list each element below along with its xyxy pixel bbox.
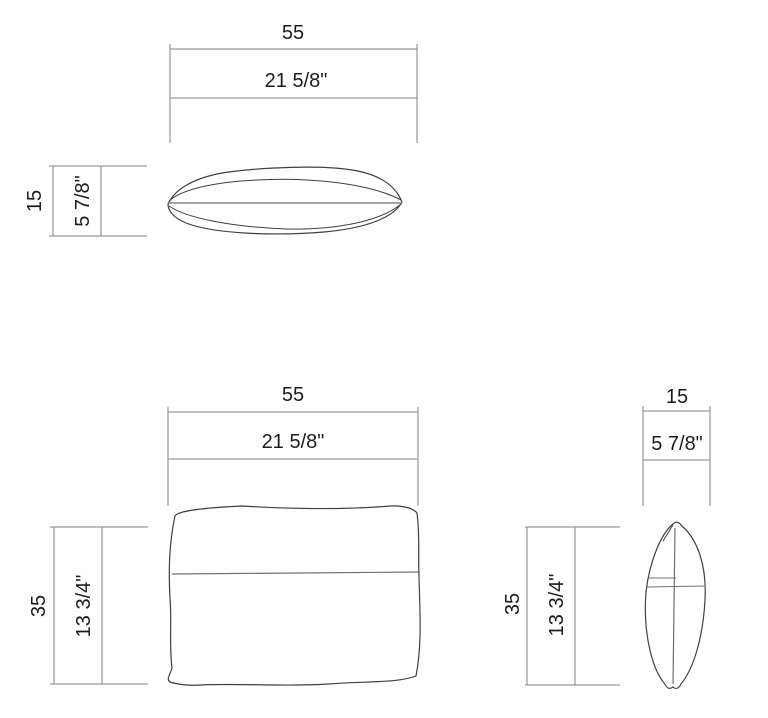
side-view-seam-line <box>673 528 675 684</box>
side-view-depth-dimension <box>643 406 710 506</box>
top-view-depth-cm-label: 15 <box>25 190 45 212</box>
front-view-height-in-label: 13 3/4" <box>74 575 94 638</box>
front-view-seam-line <box>172 572 420 574</box>
top-view-width-cm-label: 55 <box>282 23 304 43</box>
front-view-height-cm-label: 35 <box>29 595 49 617</box>
front-view-width-cm-label: 55 <box>282 385 304 405</box>
top-view-width-dimension <box>170 44 417 143</box>
top-view-width-in-label: 21 5/8" <box>265 71 328 91</box>
front-view-width-in-label: 21 5/8" <box>262 432 325 452</box>
front-view-drawing <box>168 506 420 685</box>
top-view-drawing <box>168 167 402 234</box>
side-view-height-cm-label: 35 <box>503 593 523 615</box>
dimension-drawing-svg <box>0 0 768 718</box>
side-view-height-dimension <box>525 527 620 685</box>
side-view-drawing <box>645 522 705 688</box>
top-view-depth-dimension <box>49 166 147 236</box>
front-view-width-dimension <box>168 407 418 506</box>
side-view-depth-cm-label: 15 <box>666 387 688 407</box>
drawing-canvas: 55 21 5/8" 15 5 7/8" 55 21 5/8" 35 13 3/… <box>0 0 768 718</box>
side-view-lower-seam-line <box>647 586 704 587</box>
front-view-height-dimension <box>50 527 148 684</box>
front-view-outline <box>168 506 420 685</box>
top-view-depth-in-label: 5 7/8" <box>73 175 93 227</box>
top-view-outer-outline <box>168 167 402 234</box>
side-view-depth-in-label: 5 7/8" <box>651 434 703 454</box>
side-view-height-in-label: 13 3/4" <box>547 574 567 637</box>
top-view-inner-top-contour <box>169 179 401 201</box>
